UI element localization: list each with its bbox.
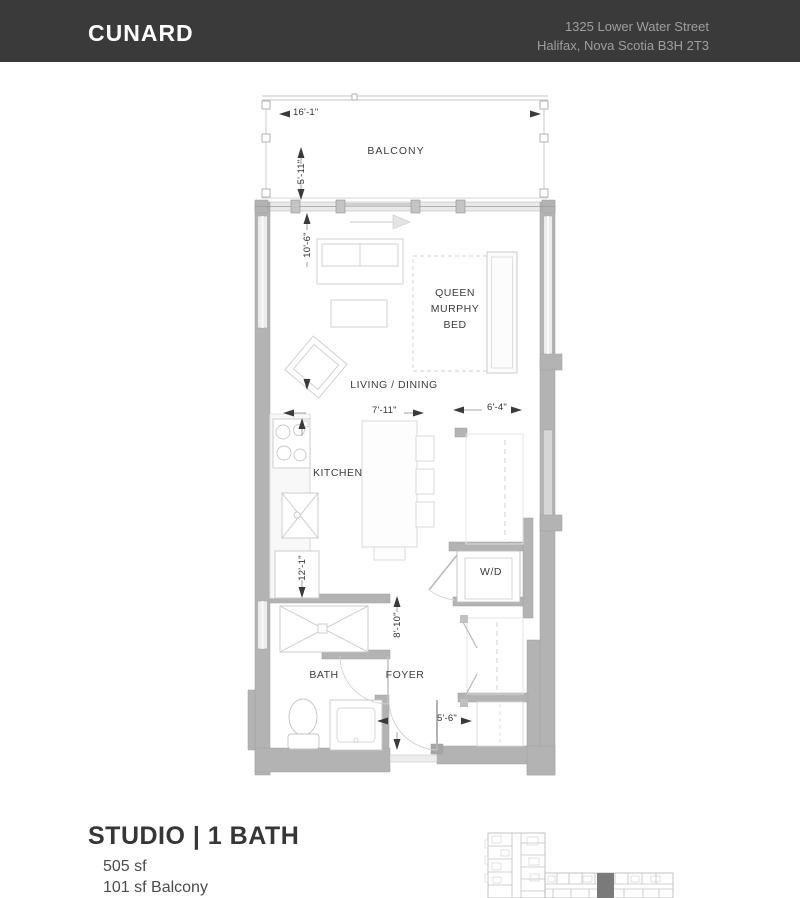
foyer-label: FOYER: [383, 669, 427, 681]
interior-area: 505 sf: [103, 858, 147, 876]
dim-foyer-length: 8'-10": [391, 602, 403, 648]
unit-type-title: STUDIO | 1 BATH: [88, 822, 299, 851]
balcony-label: BALCONY: [350, 145, 442, 157]
floor-plan-drawing: [0, 0, 800, 898]
dim-living-length: 10'-6": [301, 222, 313, 268]
key-plan-unit-highlight: [597, 873, 614, 898]
dim-balcony-depth: 5'-11": [295, 149, 307, 195]
dim-entry-width: 5'-6": [437, 713, 457, 724]
kitchen-fixtures: [270, 414, 434, 598]
dim-living-width: 7'-11": [372, 405, 397, 416]
murphy-bed-label: QUEEN MURPHY BED: [423, 286, 487, 333]
dim-closet-width: 6'-4": [487, 402, 507, 413]
key-plan: [485, 833, 673, 898]
balcony-door-arrow-icon: [393, 215, 410, 229]
floor-plan-sheet: { "header": { "building_name": "CUNARD",…: [0, 0, 800, 898]
balcony-area: 101 sf Balcony: [103, 879, 208, 897]
washer-dryer-label: W/D: [471, 566, 511, 578]
dim-kitchen-length: 12'-1": [296, 545, 308, 591]
dim-balcony-width: 16'-1": [293, 107, 318, 118]
bath-label: BATH: [303, 669, 345, 681]
living-dining-label: LIVING / DINING: [334, 379, 454, 391]
kitchen-label: KITCHEN: [313, 467, 363, 479]
